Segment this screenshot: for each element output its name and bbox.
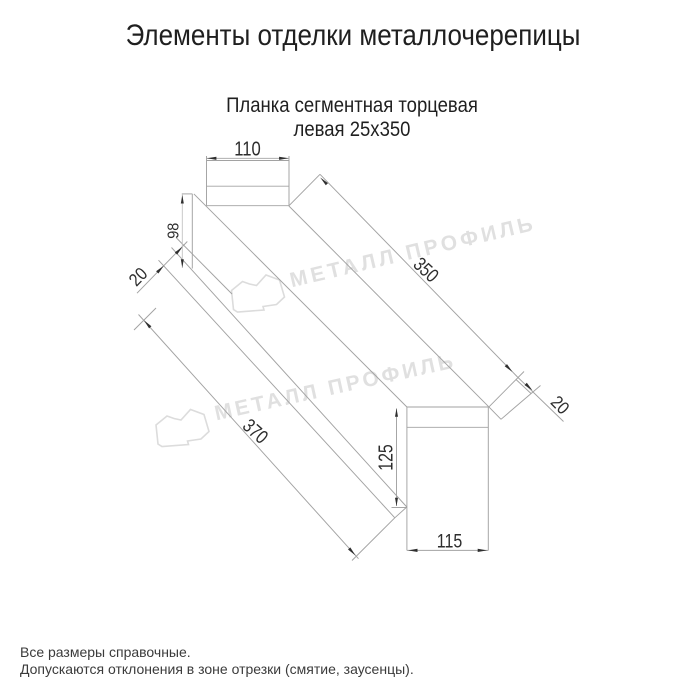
svg-text:20: 20	[547, 392, 574, 419]
svg-text:МЕТАЛЛ ПРОФИЛЬ: МЕТАЛЛ ПРОФИЛЬ	[213, 349, 459, 425]
svg-text:115: 115	[437, 532, 463, 553]
svg-text:МЕТАЛЛ ПРОФИЛЬ: МЕТАЛЛ ПРОФИЛЬ	[288, 212, 539, 292]
svg-text:370: 370	[238, 415, 272, 449]
svg-text:20: 20	[125, 264, 152, 290]
svg-text:98: 98	[166, 223, 183, 239]
svg-text:125: 125	[376, 444, 398, 471]
svg-text:110: 110	[234, 139, 261, 161]
